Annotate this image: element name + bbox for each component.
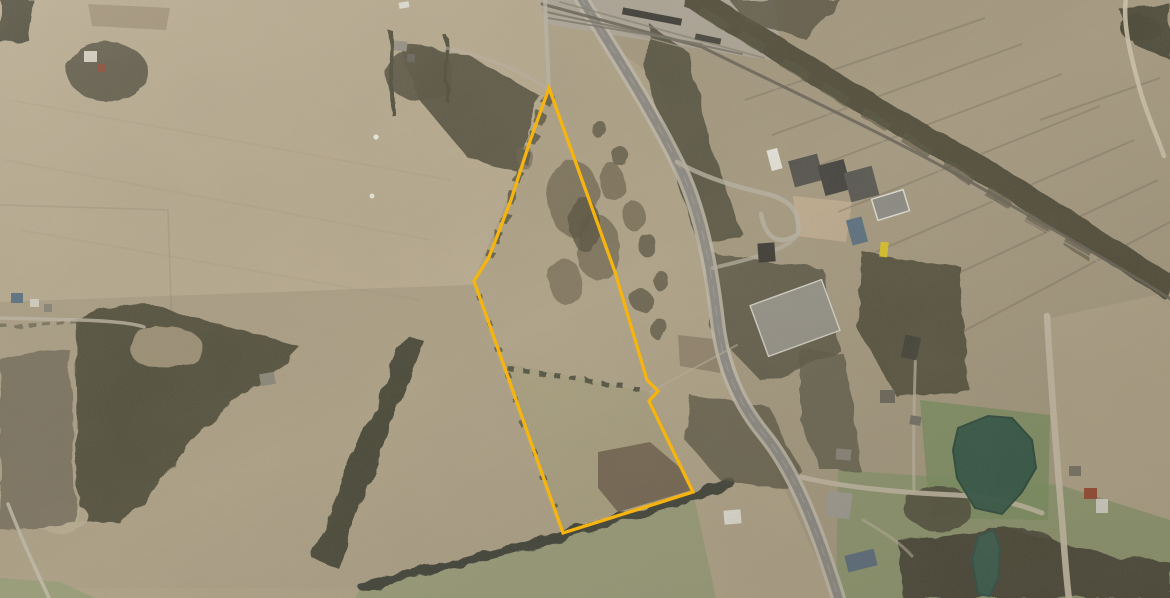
aerial-map-canvas[interactable] (0, 0, 1170, 598)
aerial-map-svg (0, 0, 1170, 598)
vignette-overlay (0, 0, 1170, 598)
